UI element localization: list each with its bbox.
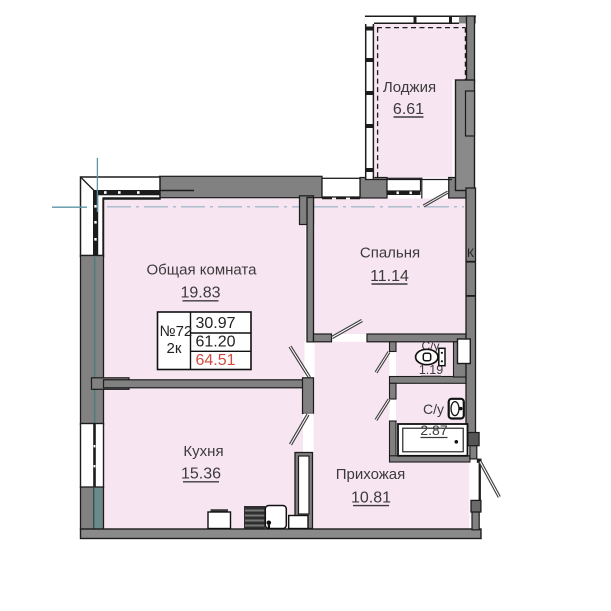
svg-text:К: К [467,246,474,260]
svg-text:64.51: 64.51 [196,352,236,369]
svg-text:Спальня: Спальня [360,245,420,262]
svg-text:№72: №72 [160,323,193,340]
svg-text:Кухня: Кухня [183,443,223,460]
svg-text:6.61: 6.61 [393,101,424,118]
svg-text:30.97: 30.97 [196,315,236,332]
svg-text:61.20: 61.20 [196,334,236,351]
svg-text:Лоджия: Лоджия [383,79,436,96]
svg-text:С/у: С/у [423,401,444,417]
svg-text:10.81: 10.81 [351,489,391,506]
svg-text:2к: 2к [167,340,182,357]
svg-text:2.87: 2.87 [420,422,447,438]
svg-text:19.83: 19.83 [180,285,220,302]
svg-text:Общая комната: Общая комната [147,262,258,279]
svg-text:Прихожая: Прихожая [336,466,406,483]
svg-text:11.14: 11.14 [370,268,409,285]
svg-text:15.36: 15.36 [181,466,221,483]
